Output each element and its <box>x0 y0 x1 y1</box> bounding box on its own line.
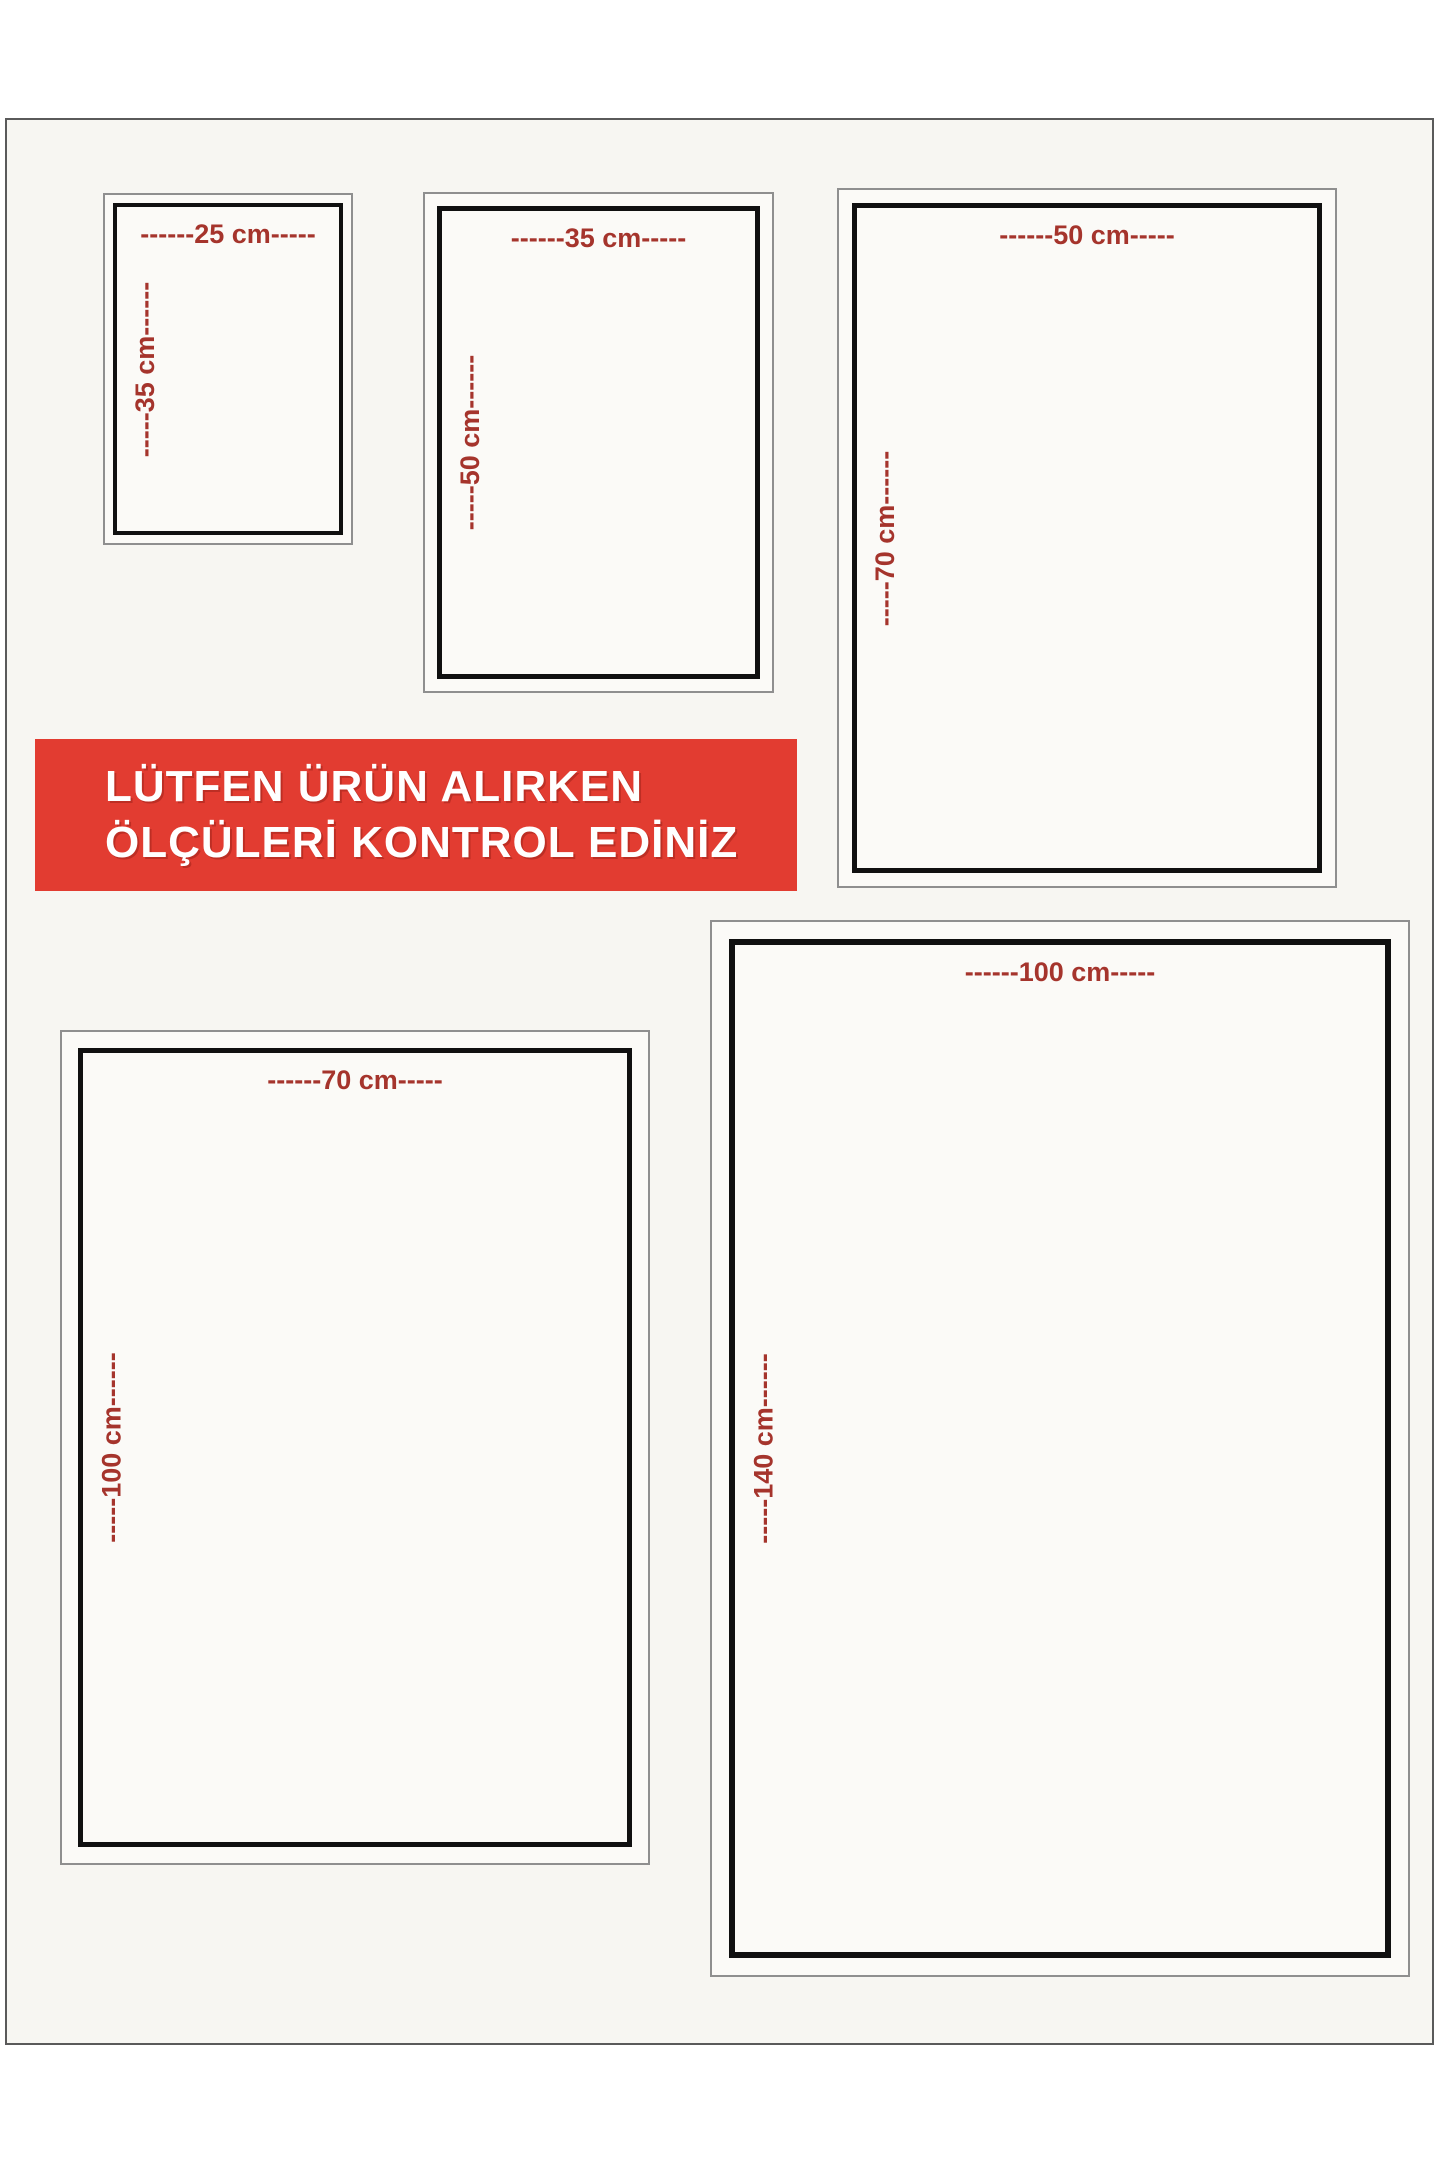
height-dimension-label-140cm: -----140 cm------ <box>749 1353 780 1543</box>
height-dimension-label-50cm: -----50 cm------ <box>456 355 487 530</box>
size-box-50x70-inner-frame: ------50 cm----- -----70 cm------ <box>852 203 1322 873</box>
size-box-25x35-inner-frame: ------25 cm----- -----35 cm------ <box>113 203 343 535</box>
size-guide-image: ------25 cm----- -----35 cm------ ------… <box>0 0 1440 2160</box>
height-dimension-label-35cm: -----35 cm------ <box>131 281 162 456</box>
size-box-25x35: ------25 cm----- -----35 cm------ <box>103 193 353 545</box>
size-box-50x70: ------50 cm----- -----70 cm------ <box>837 188 1337 888</box>
height-dimension-label-70cm: -----70 cm------ <box>871 450 902 625</box>
height-dimension-label-wrap: -----50 cm------ <box>442 211 500 674</box>
height-dimension-label-wrap: -----35 cm------ <box>117 207 175 531</box>
height-dimension-label-wrap: -----100 cm------ <box>83 1053 141 1842</box>
width-dimension-label-70cm: ------70 cm----- <box>83 1065 627 1096</box>
size-box-35x50-inner-frame: ------35 cm----- -----50 cm------ <box>437 206 760 679</box>
banner-line-2: ÖLÇÜLERİ KONTROL EDİNİZ <box>105 820 797 866</box>
height-dimension-label-wrap: -----140 cm------ <box>735 945 793 1952</box>
banner-line-1: LÜTFEN ÜRÜN ALIRKEN <box>105 764 797 810</box>
size-box-35x50: ------35 cm----- -----50 cm------ <box>423 192 774 693</box>
size-box-100x140-inner-frame: ------100 cm----- -----140 cm------ <box>729 939 1391 1958</box>
size-box-70x100: ------70 cm----- -----100 cm------ <box>60 1030 650 1865</box>
height-dimension-label-wrap: -----70 cm------ <box>857 208 915 868</box>
size-box-70x100-inner-frame: ------70 cm----- -----100 cm------ <box>78 1048 632 1847</box>
width-dimension-label-100cm: ------100 cm----- <box>735 957 1385 988</box>
size-warning-banner: LÜTFEN ÜRÜN ALIRKEN ÖLÇÜLERİ KONTROL EDİ… <box>35 739 797 891</box>
size-box-100x140: ------100 cm----- -----140 cm------ <box>710 920 1410 1977</box>
width-dimension-label-50cm: ------50 cm----- <box>857 220 1317 251</box>
height-dimension-label-100cm: -----100 cm------ <box>97 1352 128 1542</box>
